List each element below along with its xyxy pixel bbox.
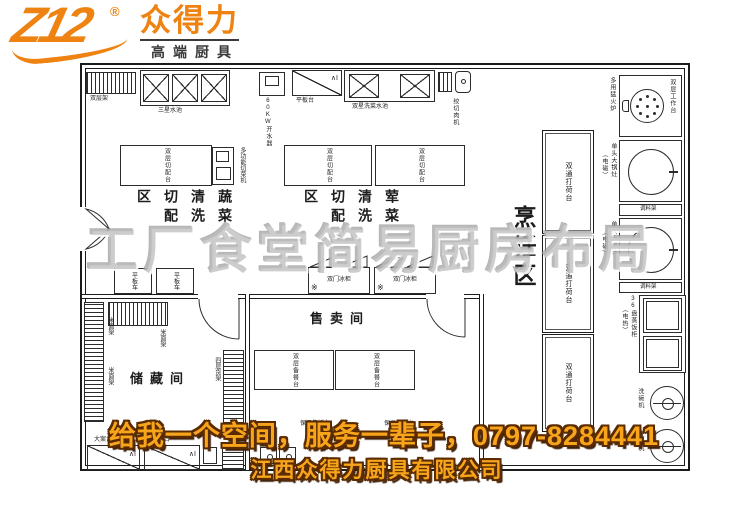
machine-part-icon	[216, 151, 229, 162]
sink-basin-icon	[143, 74, 169, 102]
bottom-banner: 给我一个空间，服务一辈子，0797-8284441 江西众得力厨具有限公司	[0, 414, 750, 484]
rice-rack-left	[84, 302, 104, 422]
steam-cabinet-sub: （电热）	[620, 306, 627, 354]
slicer-dot-icon	[461, 79, 466, 84]
pot-handle-icon	[669, 171, 678, 173]
fridge-label: 双门冰柜	[327, 277, 351, 284]
pot-icon	[628, 149, 674, 195]
pot-stove-2-label: 单头大锅灶	[609, 221, 616, 279]
meat-grinder-icon	[438, 72, 452, 92]
machine-part-icon	[216, 167, 231, 180]
sink-basin-icon	[400, 74, 430, 98]
pass-table-1-label: 双通打荷台	[564, 162, 572, 202]
pot-stove-2-sub: （电磁）	[600, 229, 607, 273]
break-mark: ∧I	[331, 75, 338, 83]
rice-rack-top	[108, 302, 168, 326]
steam-door-icon	[643, 298, 682, 333]
steam-cabinet	[639, 295, 686, 373]
snowflake-icon: ※	[311, 283, 318, 292]
wall-segment	[82, 294, 198, 299]
boiler-panel-icon	[265, 76, 279, 86]
multi-stove-label: 多用猛火炉	[608, 77, 615, 137]
double-worktop-label: 双层工作台	[668, 79, 675, 137]
pass-table-1: 双通打荷台	[542, 130, 594, 234]
veg-cutting-machine	[212, 147, 234, 185]
pot-stove-1-sub: （电磁）	[600, 151, 607, 195]
zone-veg-wash: 蔬菜清洗切配区	[130, 189, 238, 233]
three-star-sink	[140, 70, 230, 106]
spice-rack-2-label: 调料架	[640, 284, 657, 290]
snowflake-icon: ※	[377, 283, 384, 292]
pot-handle-icon	[669, 249, 678, 251]
zone-sale-room: 售卖间	[310, 308, 370, 327]
cut-table-meat-2: 双层切配台	[375, 145, 465, 186]
brand-name: 众得力	[140, 4, 239, 38]
flat-table: ∧I	[292, 70, 342, 96]
steam-door-inner	[646, 339, 679, 368]
zone-cooking: 烹饪区	[506, 205, 540, 301]
fridge-open-doors-icon	[308, 254, 370, 268]
flat-cart-2: 平板车	[156, 268, 194, 294]
double-layer-rack-label: 双层架	[90, 96, 108, 103]
meat-slicer-icon	[455, 71, 471, 93]
serve-table-2: 双层备餐台	[335, 350, 415, 390]
meat-cutter-label: 绞切肉机	[451, 98, 458, 140]
burner-tab-icon	[622, 100, 629, 112]
four-layer-shelf	[223, 350, 244, 424]
zone-storage-room: 储藏间	[130, 368, 190, 387]
pot-stove-2	[619, 218, 682, 280]
cut-table-label: 双层切配台	[325, 148, 332, 183]
serve-table-label: 双层备餐台	[291, 353, 298, 388]
pot-stove-1-label: 单头大锅灶	[609, 143, 616, 201]
veg-machine-label: 多功能切菜机	[238, 147, 245, 193]
cart-label: 平板车	[130, 272, 137, 290]
storage-door-icon	[198, 298, 240, 340]
fridge-label: 双门冰柜	[393, 277, 417, 284]
four-shelf-label: 四层货架	[213, 357, 220, 393]
cut-table-label: 双层切配台	[417, 148, 424, 183]
sink-basin-icon	[349, 74, 379, 98]
floor-plan: 双层架 三星水池 60KW开水器 ∧I 平板台 双星洗菜水池 绞切肉机	[80, 63, 690, 471]
rice-rack-label: 米面架	[158, 329, 165, 355]
serve-table-label: 双层备餐台	[372, 353, 379, 388]
spice-rack-1-label: 调料架	[640, 206, 657, 212]
dishwasher-hub-icon	[662, 398, 674, 410]
double-door-fridge-2: 双门冰柜 ※	[374, 254, 436, 294]
banner-slogan-phone: 给我一个空间，服务一辈子，0797-8284441	[18, 414, 750, 453]
burner-dots-icon	[646, 105, 649, 108]
steam-door-inner	[646, 301, 679, 330]
double-swing-door-icon	[84, 207, 112, 251]
pass-table-2: 双通打荷台	[542, 235, 594, 333]
pot-stove-1	[619, 140, 682, 202]
pass-table-2-label: 双通打荷台	[564, 264, 572, 304]
double-door-fridge-1: 双门冰柜 ※	[308, 254, 370, 294]
sink-basin-icon	[172, 74, 198, 102]
banner-company-name: 江西众得力厨具有限公司	[4, 454, 750, 484]
cut-table-label: 双层切配台	[163, 148, 170, 183]
company-logo: Z12 ® 众得力 高端厨具	[14, 4, 264, 64]
registered-icon: ®	[110, 4, 120, 19]
fridge-open-doors-icon	[374, 254, 436, 268]
pass-table-3-label: 双通打荷台	[564, 363, 572, 403]
wall-segment	[238, 294, 426, 299]
brand-tagline: 高端厨具	[140, 39, 239, 62]
cut-table-meat-1: 双层切配台	[284, 145, 372, 186]
sink-basin-icon	[201, 74, 227, 102]
double-layer-rack	[86, 72, 136, 94]
rice-rack-label: 米面架	[106, 317, 113, 343]
sale-room-door-icon	[426, 298, 466, 338]
zone-meat-wash: 荤菜清洗切配区	[297, 189, 405, 233]
pot-icon	[628, 227, 674, 273]
water-boiler	[259, 72, 285, 96]
logo-mark: Z12 ®	[14, 4, 132, 62]
steam-door-icon	[643, 336, 682, 371]
double-star-sink	[344, 70, 435, 102]
page: Z12 ® 众得力 高端厨具 双层架 三星水池 60KW开水器	[0, 0, 750, 530]
cut-table-veg: 双层切配台	[120, 145, 212, 186]
double-star-sink-label: 双星洗菜水池	[352, 104, 388, 111]
rice-rack-label: 米面架	[106, 367, 113, 393]
steam-cabinet-label: 36盘蒸饭柜	[629, 296, 636, 364]
three-star-sink-label: 三星水池	[158, 108, 182, 115]
serve-table-1: 双层备餐台	[254, 350, 334, 390]
flat-table-label: 平板台	[296, 98, 314, 105]
flat-cart-1: 平板车	[114, 268, 152, 294]
burner-icon	[630, 89, 664, 123]
cart-label: 平板车	[172, 272, 179, 290]
water-boiler-label: 60KW开水器	[264, 98, 271, 142]
